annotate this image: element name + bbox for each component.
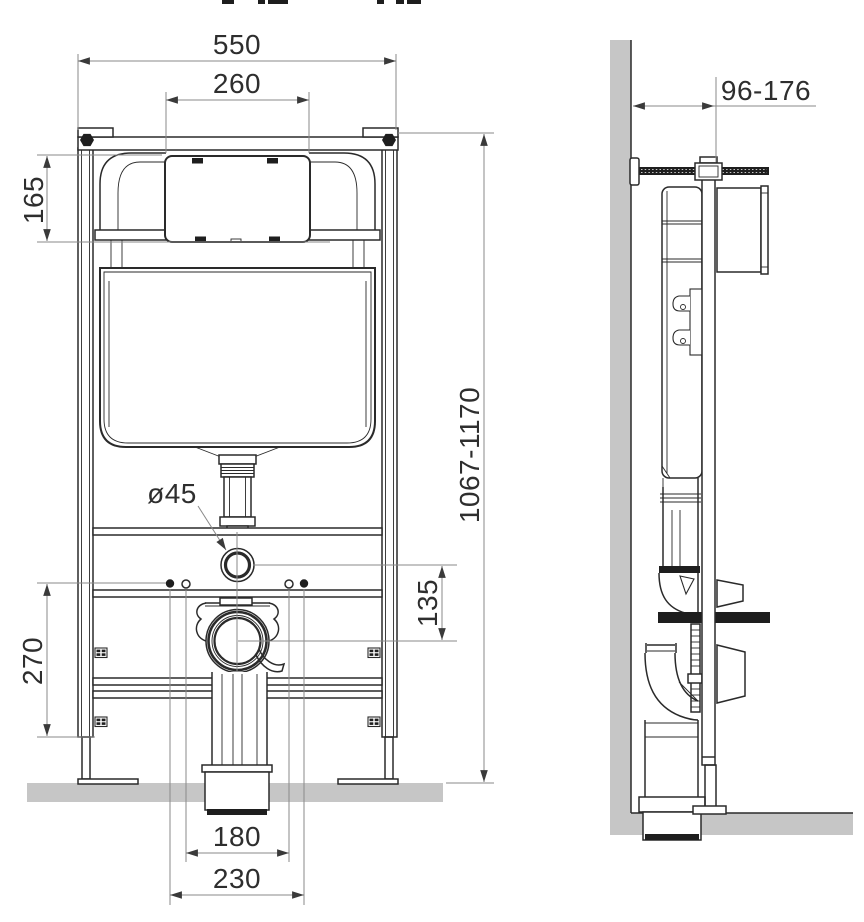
side-rail xyxy=(702,160,715,765)
dim-overall-height: 1067-1170 xyxy=(398,133,494,783)
pan-spigot-upper xyxy=(717,580,743,607)
side-view xyxy=(610,40,853,840)
front-view xyxy=(27,128,443,815)
flush-access-box xyxy=(717,186,768,274)
dim-label-outer-stud-spacing: 230 xyxy=(213,863,261,894)
installation-drawing: 550 260 165 1067-1170 ø45 xyxy=(0,0,864,922)
cistern-tank xyxy=(100,268,375,457)
clip-icon xyxy=(368,648,380,658)
dim-label-depth-adjustment: 96-176 xyxy=(721,75,811,106)
flush-panel xyxy=(165,156,310,242)
dim-label-overall-height: 1067-1170 xyxy=(454,387,485,523)
frame-right-rail xyxy=(382,148,397,737)
dim-depth-adjustment: 96-176 xyxy=(633,75,816,162)
waste-outlet xyxy=(196,598,284,673)
dim-label-supply-to-outlet: 135 xyxy=(412,579,443,627)
wall-anchor-rod xyxy=(630,157,769,185)
clip-icon xyxy=(95,648,107,658)
dim-supply-to-outlet: 135 xyxy=(237,532,457,671)
frame-left-rail xyxy=(78,148,93,737)
frame-top-rail xyxy=(78,128,398,150)
dim-lower-fixing-height: 270 xyxy=(17,583,166,737)
wall xyxy=(610,40,631,835)
side-flush-pipe xyxy=(659,478,701,613)
outlet-pipe-bottom xyxy=(202,672,272,815)
clip-icon xyxy=(368,717,380,727)
dim-label-supply-hole: ø45 xyxy=(147,478,197,509)
dim-label-inner-stud-spacing: 180 xyxy=(213,821,261,852)
cropped-text-remnant xyxy=(222,0,421,4)
dim-label-lower-fixing-height: 270 xyxy=(17,637,48,685)
technical-drawing-canvas: 550 260 165 1067-1170 ø45 xyxy=(0,0,864,922)
dim-label-panel-width: 260 xyxy=(213,68,261,99)
pan-spigot-lower xyxy=(717,645,745,703)
flush-pipe xyxy=(219,455,256,531)
dim-label-overall-width: 550 xyxy=(213,29,261,60)
clip-icon xyxy=(95,717,107,727)
dim-supply-hole: ø45 xyxy=(147,478,226,550)
dim-label-panel-height: 165 xyxy=(18,176,49,224)
